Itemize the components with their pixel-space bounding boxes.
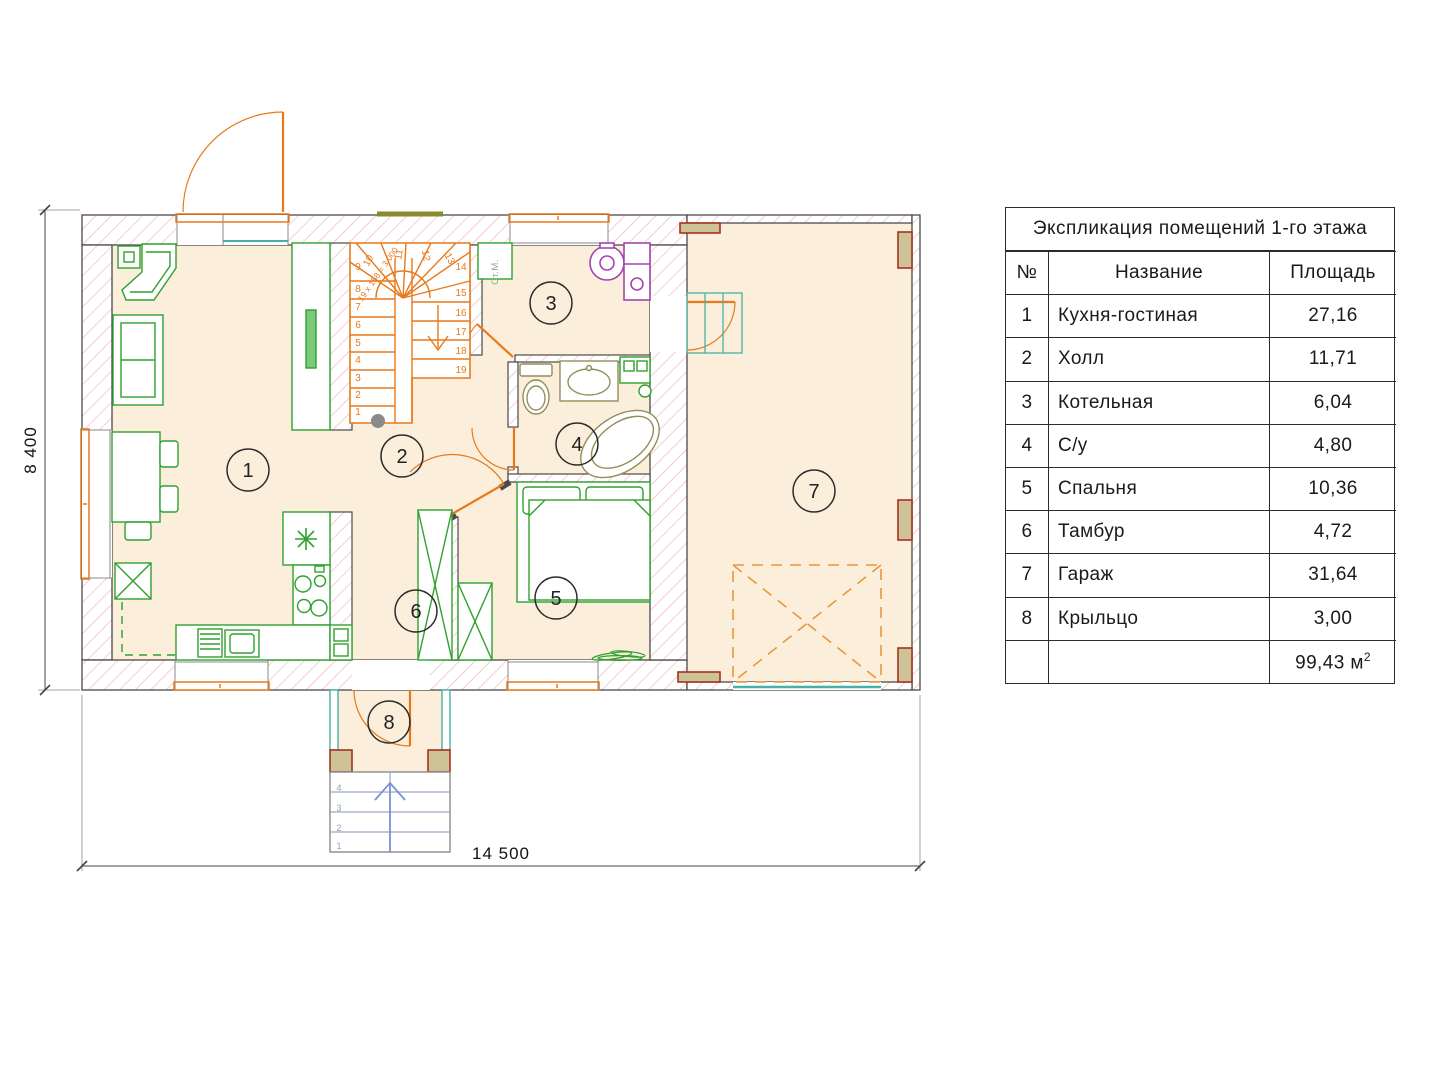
- porch-post: [428, 750, 450, 772]
- dining-table: [112, 432, 160, 522]
- hob-star: [295, 528, 317, 550]
- dim-width: 14 500: [77, 695, 925, 871]
- svg-text:14 500: 14 500: [472, 844, 530, 863]
- svg-text:8: 8: [355, 284, 361, 295]
- room-name: Кухня-гостиная: [1049, 295, 1270, 338]
- washer-label: Ст.М.: [490, 259, 501, 285]
- svg-text:7: 7: [808, 481, 819, 503]
- table-row: 3 Котельная 6,04: [1006, 381, 1396, 424]
- oven-tower: [330, 625, 352, 660]
- svg-text:1: 1: [242, 460, 253, 482]
- svg-text:6: 6: [355, 320, 361, 331]
- chair: [125, 522, 151, 540]
- col-header-name: Название: [1049, 252, 1270, 295]
- svg-text:4: 4: [355, 355, 361, 366]
- room-name: Гараж: [1049, 554, 1270, 597]
- room-area: 3,00: [1270, 597, 1397, 640]
- svg-text:6: 6: [410, 601, 421, 623]
- blanket: [529, 500, 650, 600]
- room-schedule-table: Экспликация помещений 1-го этажа № Назва…: [1005, 207, 1395, 684]
- svg-text:15: 15: [455, 288, 467, 299]
- table-title: Экспликация помещений 1-го этажа: [1006, 208, 1394, 251]
- room-num: 7: [1006, 554, 1049, 597]
- svg-text:4: 4: [336, 783, 341, 793]
- total-num-cell: [1006, 640, 1049, 683]
- sink-bowl: [568, 369, 610, 395]
- svg-text:16: 16: [455, 308, 467, 319]
- svg-text:8 400: 8 400: [21, 426, 40, 474]
- chair: [160, 441, 178, 467]
- table-row: 2 Холл 11,71: [1006, 338, 1396, 381]
- svg-text:1: 1: [336, 841, 341, 851]
- room-area: 4,80: [1270, 424, 1397, 467]
- svg-text:7: 7: [355, 302, 361, 313]
- room-num: 4: [1006, 424, 1049, 467]
- dim-height: 8 400: [21, 205, 80, 695]
- room-name: Котельная: [1049, 381, 1270, 424]
- stove: [293, 565, 330, 625]
- room-name: С/у: [1049, 424, 1270, 467]
- room-num: 5: [1006, 467, 1049, 510]
- room-area: 27,16: [1270, 295, 1397, 338]
- toilet-tank: [520, 364, 552, 376]
- entry-steps: 4 3 2 1: [330, 772, 450, 852]
- svg-text:1: 1: [355, 407, 361, 418]
- room-num: 2: [1006, 338, 1049, 381]
- col-header-num: №: [1006, 252, 1049, 295]
- svg-text:3: 3: [355, 373, 361, 384]
- room-name: Тамбур: [1049, 511, 1270, 554]
- room-num: 6: [1006, 511, 1049, 554]
- tv: [306, 310, 316, 368]
- room-name: Крыльцо: [1049, 597, 1270, 640]
- svg-text:2: 2: [396, 446, 407, 468]
- boiler-cabinet: [624, 243, 650, 300]
- svg-text:5: 5: [355, 338, 361, 349]
- room-num: 8: [1006, 597, 1049, 640]
- svg-text:17: 17: [455, 327, 467, 338]
- table-row: 4 С/у 4,80: [1006, 424, 1396, 467]
- svg-text:4: 4: [571, 434, 582, 456]
- table-header-row: № Название Площадь: [1006, 252, 1396, 295]
- svg-text:2: 2: [336, 823, 341, 833]
- table-total-row: 99,43 м2: [1006, 640, 1396, 683]
- room-area: 10,36: [1270, 467, 1397, 510]
- table-row: 8 Крыльцо 3,00: [1006, 597, 1396, 640]
- room-area: 6,04: [1270, 381, 1397, 424]
- table-row: 1 Кухня-гостиная 27,16: [1006, 295, 1396, 338]
- porch-post: [330, 750, 352, 772]
- svg-text:2: 2: [355, 390, 361, 401]
- svg-text:5: 5: [550, 588, 561, 610]
- chair: [160, 486, 178, 512]
- total-area-cell: 99,43 м2: [1270, 640, 1397, 683]
- svg-text:19: 19: [455, 365, 467, 376]
- svg-text:3: 3: [336, 803, 341, 813]
- table-row: 7 Гараж 31,64: [1006, 554, 1396, 597]
- room-area: 4,72: [1270, 511, 1397, 554]
- table-row: 5 Спальня 10,36: [1006, 467, 1396, 510]
- room-name: Спальня: [1049, 467, 1270, 510]
- room-num: 1: [1006, 295, 1049, 338]
- room-area: 11,71: [1270, 338, 1397, 381]
- room-num: 3: [1006, 381, 1049, 424]
- svg-text:14: 14: [455, 262, 467, 273]
- svg-text:8: 8: [383, 712, 394, 734]
- room-name: Холл: [1049, 338, 1270, 381]
- svg-text:18: 18: [455, 346, 467, 357]
- stair-post: [371, 414, 385, 428]
- room-area: 31,64: [1270, 554, 1397, 597]
- svg-text:3: 3: [545, 293, 556, 315]
- table-row: 6 Тамбур 4,72: [1006, 511, 1396, 554]
- total-name-cell: [1049, 640, 1270, 683]
- col-header-area: Площадь: [1270, 252, 1397, 295]
